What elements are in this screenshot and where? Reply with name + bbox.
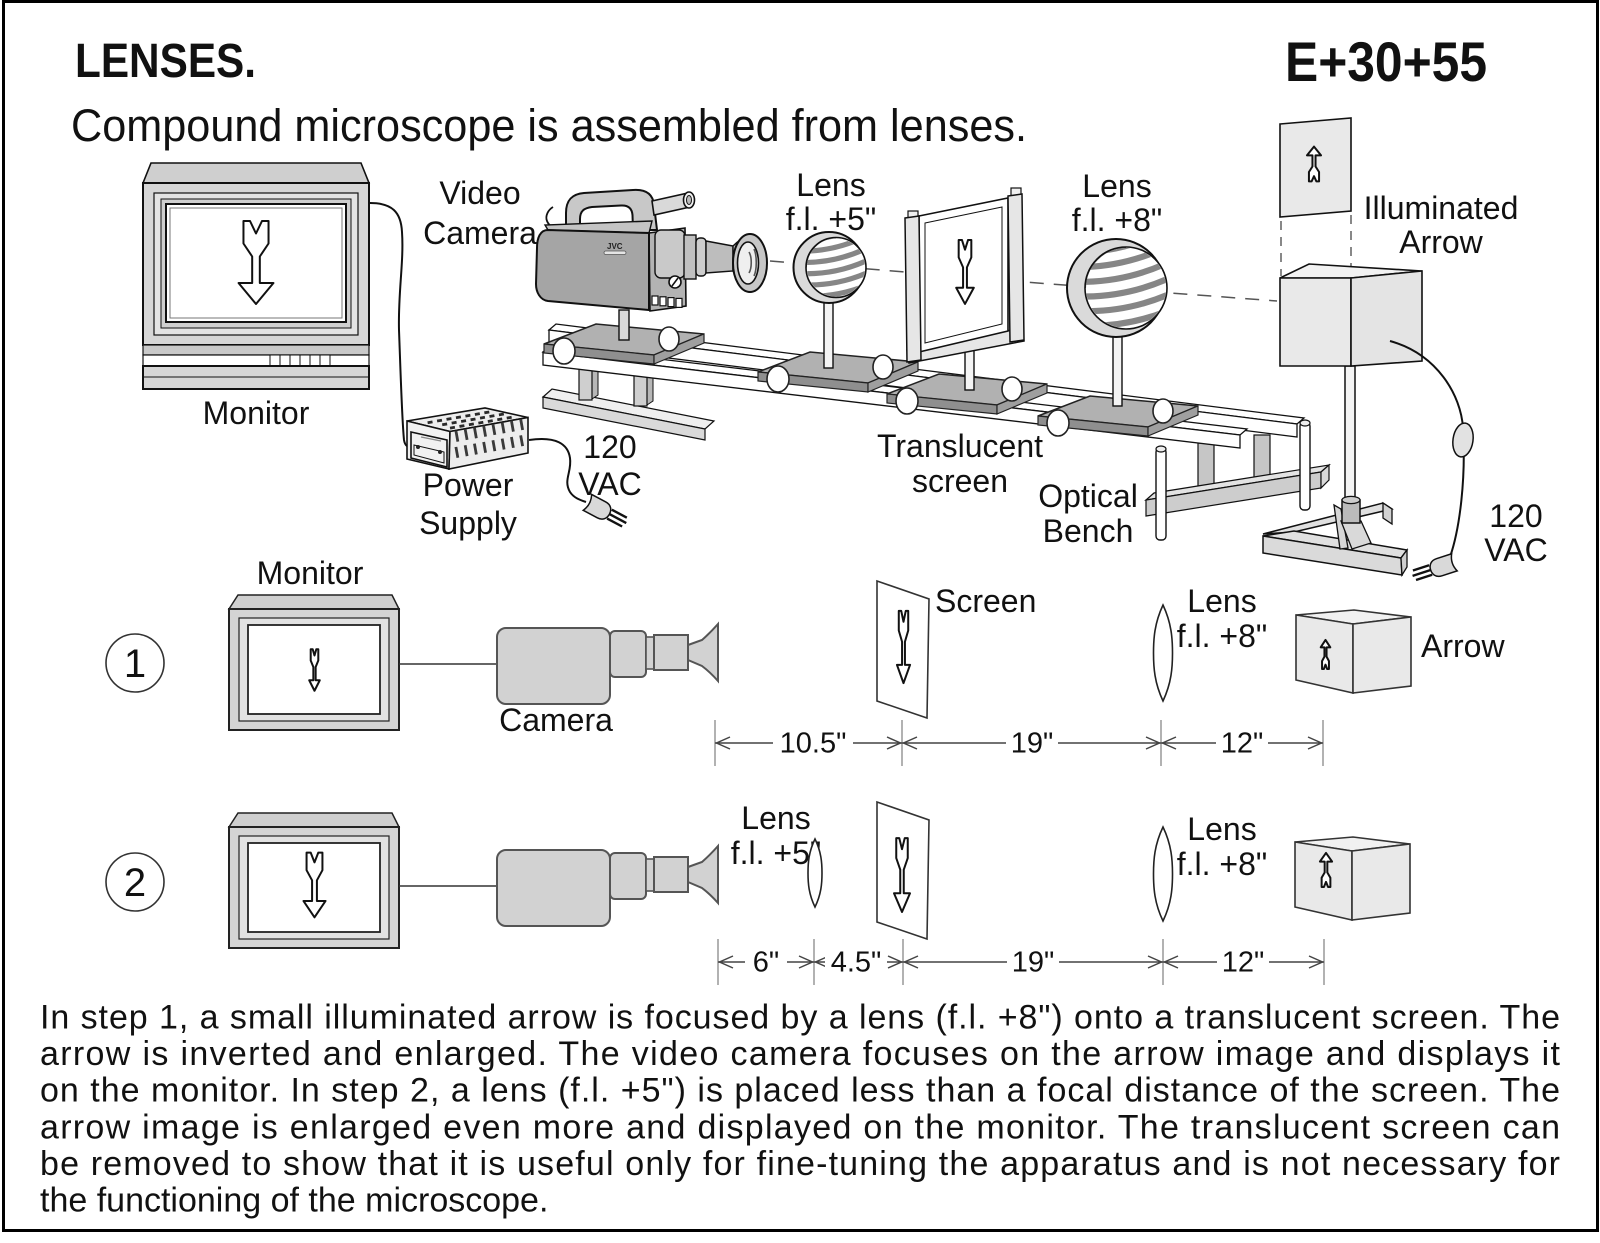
svg-text:Illuminated: Illuminated	[1364, 190, 1519, 226]
svg-text:120: 120	[583, 429, 636, 465]
svg-text:19": 19"	[1011, 728, 1054, 760]
svg-text:VAC: VAC	[578, 466, 641, 502]
svg-text:f.l. +8": f.l. +8"	[1072, 202, 1163, 238]
svg-text:Monitor: Monitor	[203, 395, 310, 431]
svg-text:10.5": 10.5"	[780, 728, 847, 760]
svg-text:12": 12"	[1222, 947, 1265, 979]
svg-text:Camera: Camera	[423, 215, 537, 251]
svg-text:12": 12"	[1221, 728, 1264, 760]
svg-text:Camera: Camera	[499, 702, 613, 738]
svg-text:Lens: Lens	[741, 800, 810, 836]
svg-text:19": 19"	[1012, 947, 1055, 979]
svg-text:Screen: Screen	[935, 583, 1036, 619]
svg-text:Optical: Optical	[1038, 478, 1138, 514]
svg-text:the functioning of the microsc: the functioning of the microscope.	[40, 1182, 548, 1220]
svg-text:Power: Power	[423, 467, 514, 503]
svg-text:Lens: Lens	[1187, 811, 1256, 847]
svg-text:Lens: Lens	[1187, 583, 1256, 619]
svg-text:E+30+55: E+30+55	[1285, 30, 1487, 93]
svg-text:arrow is inverted and enlarged: arrow is inverted and enlarged. The vide…	[40, 1035, 1561, 1073]
svg-text:120: 120	[1489, 498, 1542, 534]
svg-text:Compound microscope is assembl: Compound microscope is assembled from le…	[71, 100, 1027, 151]
svg-text:1: 1	[124, 642, 146, 686]
svg-text:Monitor: Monitor	[257, 555, 364, 591]
svg-text:Arrow: Arrow	[1399, 224, 1483, 260]
svg-text:be removed to show that it is: be removed to show that it is useful onl…	[40, 1145, 1560, 1183]
svg-text:JVC: JVC	[607, 242, 623, 251]
svg-text:2: 2	[124, 861, 146, 905]
svg-text:f.l. +8": f.l. +8"	[1177, 618, 1268, 654]
svg-text:Bench: Bench	[1043, 513, 1134, 549]
svg-text:4.5": 4.5"	[831, 947, 882, 979]
svg-text:screen: screen	[912, 463, 1008, 499]
svg-text:Lens: Lens	[796, 167, 865, 203]
svg-text:VAC: VAC	[1484, 532, 1547, 568]
svg-text:Supply: Supply	[419, 505, 517, 541]
svg-text:on the monitor. In step 2, a l: on the monitor. In step 2, a lens (f.l. …	[40, 1072, 1560, 1110]
svg-text:6": 6"	[753, 947, 779, 979]
svg-text:f.l. +8": f.l. +8"	[1177, 846, 1268, 882]
svg-text:arrow image is enlarged even m: arrow image is enlarged even more and di…	[40, 1108, 1560, 1146]
svg-text:In step 1, a small illuminated: In step 1, a small illuminated arrow is …	[40, 999, 1560, 1037]
svg-text:Video: Video	[439, 175, 520, 211]
svg-text:LENSES.: LENSES.	[75, 35, 256, 88]
svg-text:Arrow: Arrow	[1421, 628, 1505, 664]
svg-text:Translucent: Translucent	[877, 428, 1043, 464]
svg-text:Lens: Lens	[1082, 168, 1151, 204]
